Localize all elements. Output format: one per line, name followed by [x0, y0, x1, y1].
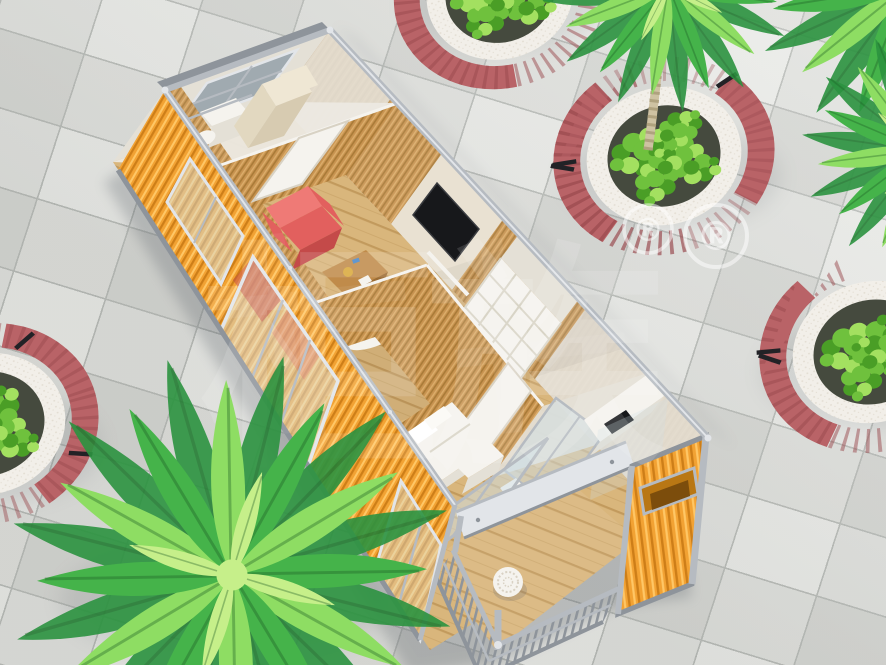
plaza-scene: 柜族 ® ® [0, 0, 886, 665]
svg-text:®: ® [632, 211, 664, 249]
container-house-render: 柜族 ® ® [0, 0, 886, 665]
svg-text:®: ® [696, 214, 736, 260]
registered-mark-2: ® [685, 205, 747, 267]
registered-mark: ® [624, 205, 672, 253]
planter-right [740, 240, 886, 468]
